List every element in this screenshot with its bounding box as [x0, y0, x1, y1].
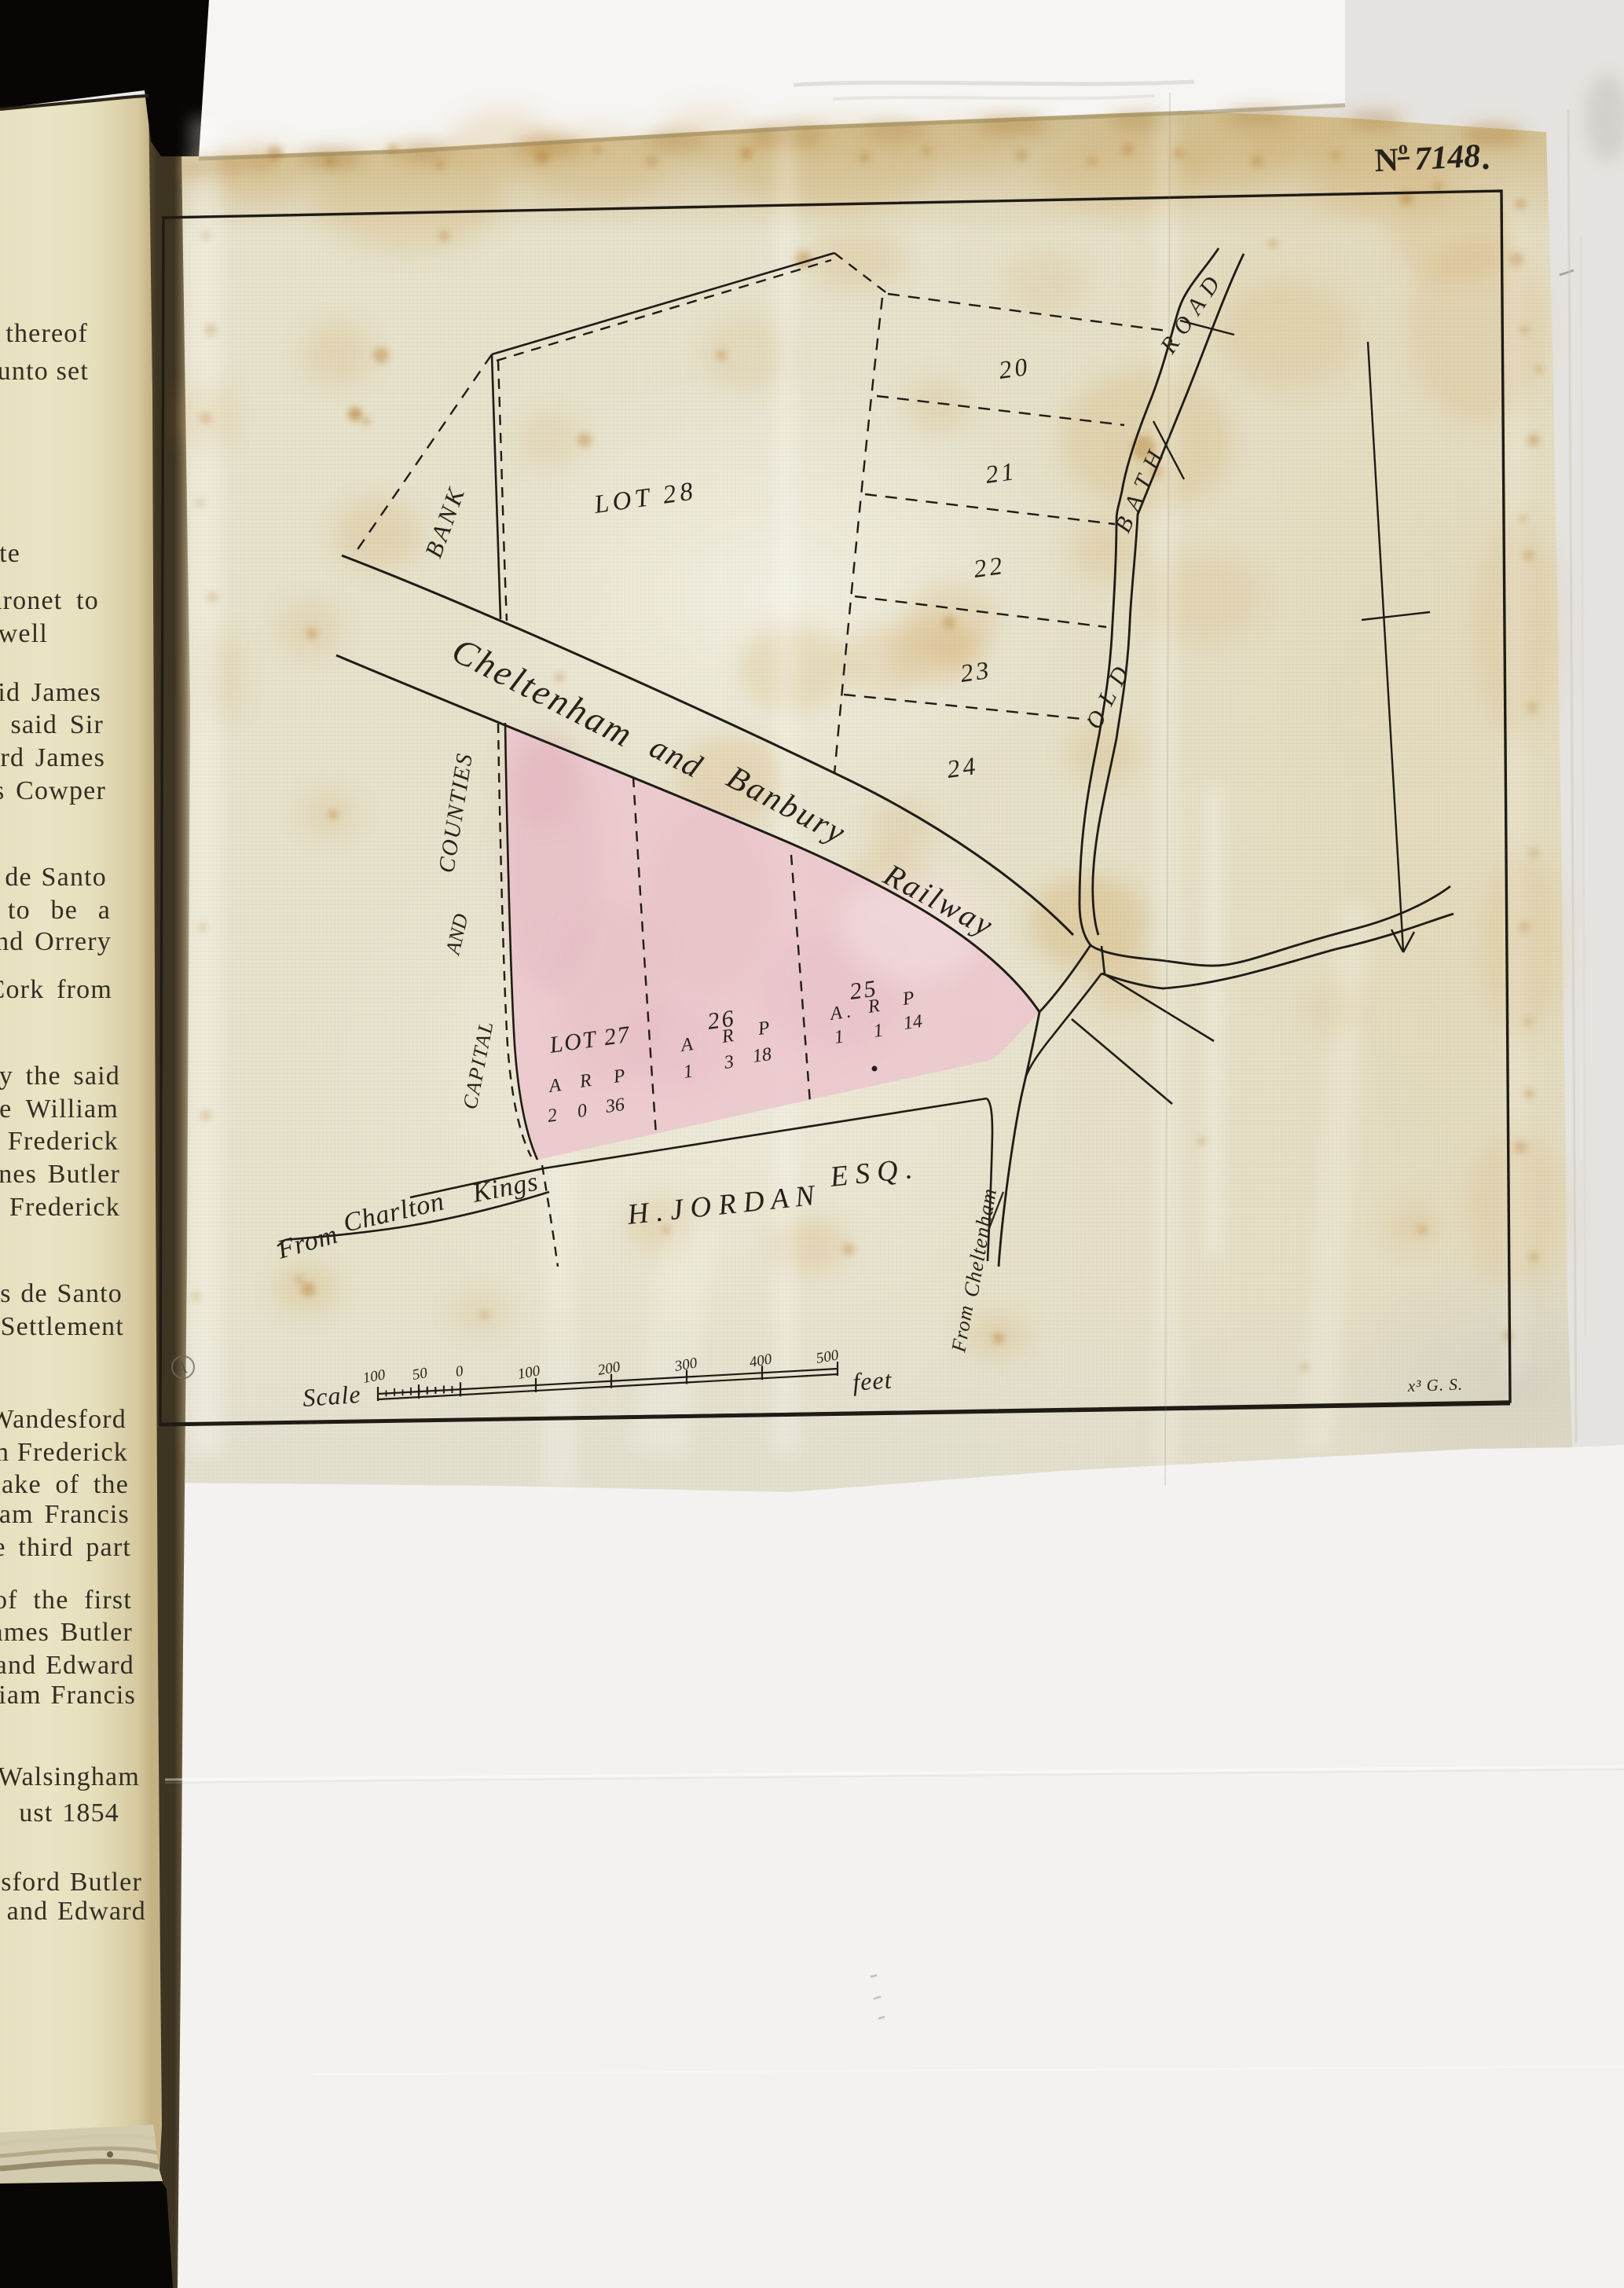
svg-text:AND: AND — [441, 911, 472, 958]
svg-text:From: From — [273, 1220, 341, 1265]
svg-text:o: o — [1398, 138, 1408, 159]
svg-text:400: 400 — [748, 1351, 773, 1371]
svg-text:x³ G. S.: x³ G. S. — [1406, 1375, 1463, 1395]
svg-text:OLD: OLD — [1081, 654, 1138, 734]
svg-text:A .: A . — [827, 1002, 852, 1025]
svg-text:0: 0 — [454, 1363, 464, 1380]
svg-text:23: 23 — [959, 655, 994, 687]
svg-text:20: 20 — [997, 352, 1032, 384]
svg-text:feet: feet — [852, 1366, 893, 1396]
svg-text:7148: 7148 — [1413, 138, 1481, 178]
svg-text:N: N — [1374, 142, 1399, 179]
svg-text:100: 100 — [361, 1366, 387, 1387]
svg-text:BANK: BANK — [420, 482, 471, 561]
svg-text:CAPITAL: CAPITAL — [458, 1018, 497, 1111]
svg-text:Cheltenham: Cheltenham — [959, 1186, 1001, 1299]
svg-text:36: 36 — [603, 1094, 625, 1117]
svg-text:50: 50 — [411, 1365, 429, 1384]
svg-text:100: 100 — [516, 1362, 541, 1383]
svg-text:22: 22 — [972, 551, 1007, 583]
svg-text:21: 21 — [984, 456, 1019, 489]
svg-text:24: 24 — [945, 751, 981, 783]
svg-text:E S Q .: E S Q . — [828, 1153, 915, 1193]
svg-text:200: 200 — [596, 1358, 621, 1379]
svg-text:Kings: Kings — [469, 1167, 541, 1208]
svg-text:18: 18 — [751, 1044, 772, 1067]
svg-text:Scale: Scale — [302, 1380, 362, 1412]
svg-text:14: 14 — [902, 1011, 923, 1034]
svg-text:Charlton: Charlton — [340, 1186, 447, 1237]
svg-text:500: 500 — [815, 1347, 840, 1367]
svg-text:LOT 28: LOT 28 — [592, 477, 698, 519]
svg-text:COUNTIES: COUNTIES — [434, 750, 478, 874]
